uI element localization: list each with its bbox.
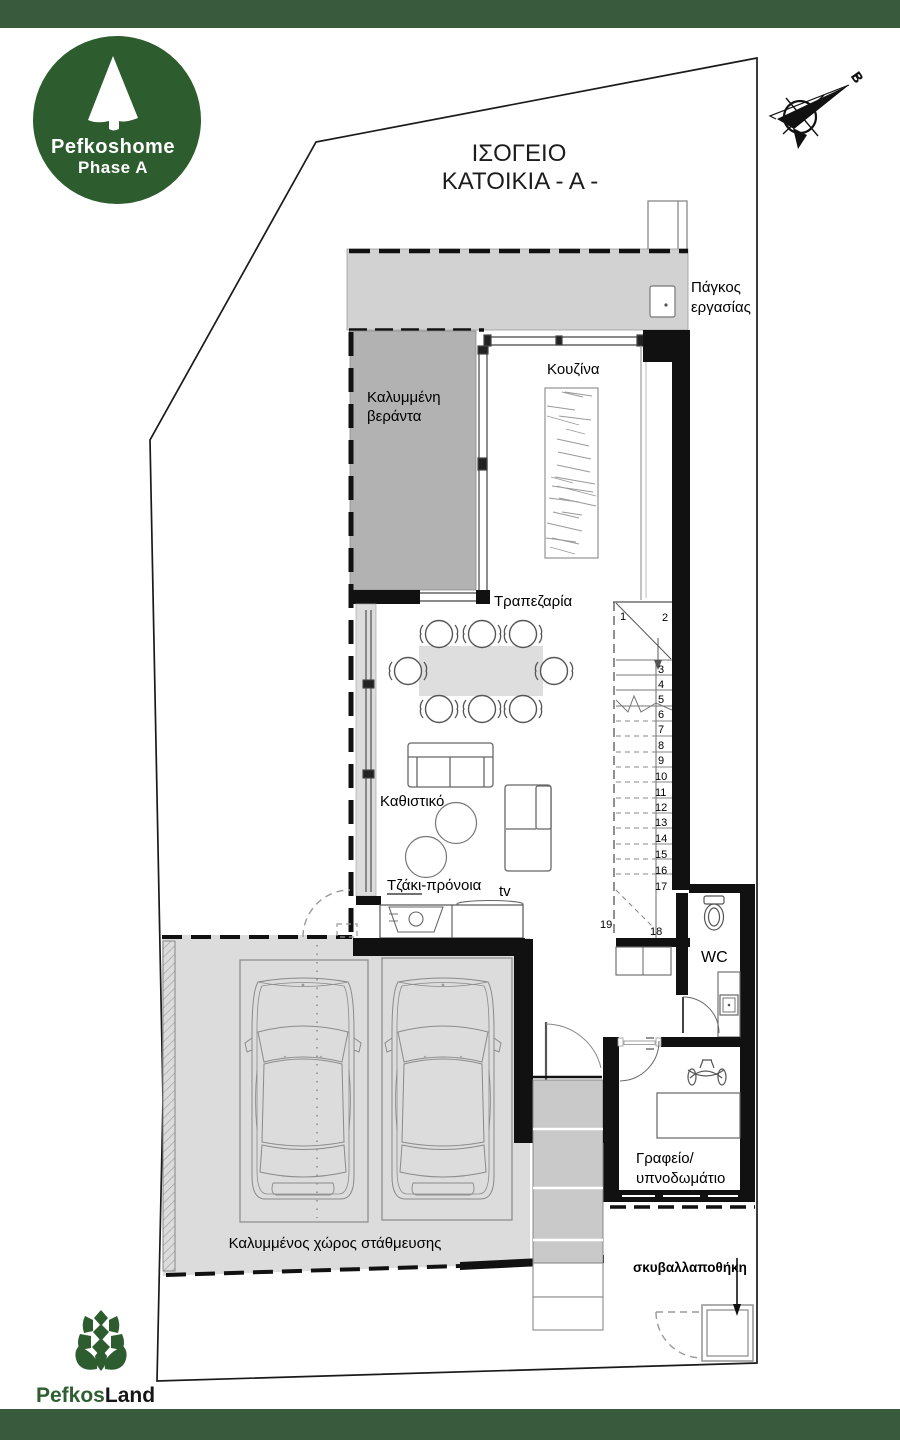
- svg-text:Καθιστικό: Καθιστικό: [380, 793, 444, 810]
- svg-text:8: 8: [658, 740, 664, 752]
- svg-text:3: 3: [658, 664, 664, 676]
- svg-text:εργασίας: εργασίας: [691, 299, 751, 316]
- svg-text:19: 19: [600, 919, 612, 931]
- svg-text:WC: WC: [701, 949, 728, 966]
- svg-text:Γραφείο/: Γραφείο/: [636, 1150, 695, 1167]
- svg-text:5: 5: [658, 694, 664, 706]
- svg-text:Τραπεζαρία: Τραπεζαρία: [494, 593, 573, 610]
- svg-text:2: 2: [662, 612, 668, 624]
- svg-text:14: 14: [655, 833, 667, 845]
- svg-text:10: 10: [655, 771, 667, 783]
- svg-text:βεράντα: βεράντα: [367, 408, 422, 425]
- svg-text:ΚΑΤΟΙΚΙΑ - Α -: ΚΑΤΟΙΚΙΑ - Α -: [442, 168, 599, 195]
- svg-text:Τζάκι-πρόνοια: Τζάκι-πρόνοια: [387, 877, 482, 894]
- svg-text:PefkosLand: PefkosLand: [36, 1384, 155, 1407]
- svg-text:9: 9: [658, 755, 664, 767]
- svg-text:υπνοδωμάτιο: υπνοδωμάτιο: [636, 1170, 725, 1187]
- svg-text:1: 1: [620, 611, 626, 623]
- svg-text:7: 7: [658, 724, 664, 736]
- svg-text:Καλυμμένη: Καλυμμένη: [367, 389, 441, 406]
- svg-text:Καλυμμένος χώρος στάθμευσης: Καλυμμένος χώρος στάθμευσης: [229, 1235, 442, 1252]
- svg-text:17: 17: [655, 881, 667, 893]
- svg-text:16: 16: [655, 865, 667, 877]
- svg-text:12: 12: [655, 802, 667, 814]
- svg-text:11: 11: [655, 787, 666, 799]
- svg-text:σκυβαλλαποθήκη: σκυβαλλαποθήκη: [633, 1260, 747, 1275]
- svg-text:4: 4: [658, 679, 664, 691]
- svg-text:Κουζίνα: Κουζίνα: [547, 361, 600, 378]
- svg-text:ΙΣΟΓΕΙΟ: ΙΣΟΓΕΙΟ: [472, 140, 567, 167]
- svg-text:18: 18: [650, 926, 662, 938]
- svg-text:Pefkoshome: Pefkoshome: [51, 136, 175, 158]
- svg-text:13: 13: [655, 817, 667, 829]
- svg-text:Phase A: Phase A: [78, 158, 148, 177]
- svg-text:Πάγκος: Πάγκος: [691, 279, 741, 296]
- svg-text:15: 15: [655, 849, 667, 861]
- svg-text:6: 6: [658, 709, 664, 721]
- svg-text:tv: tv: [499, 883, 511, 900]
